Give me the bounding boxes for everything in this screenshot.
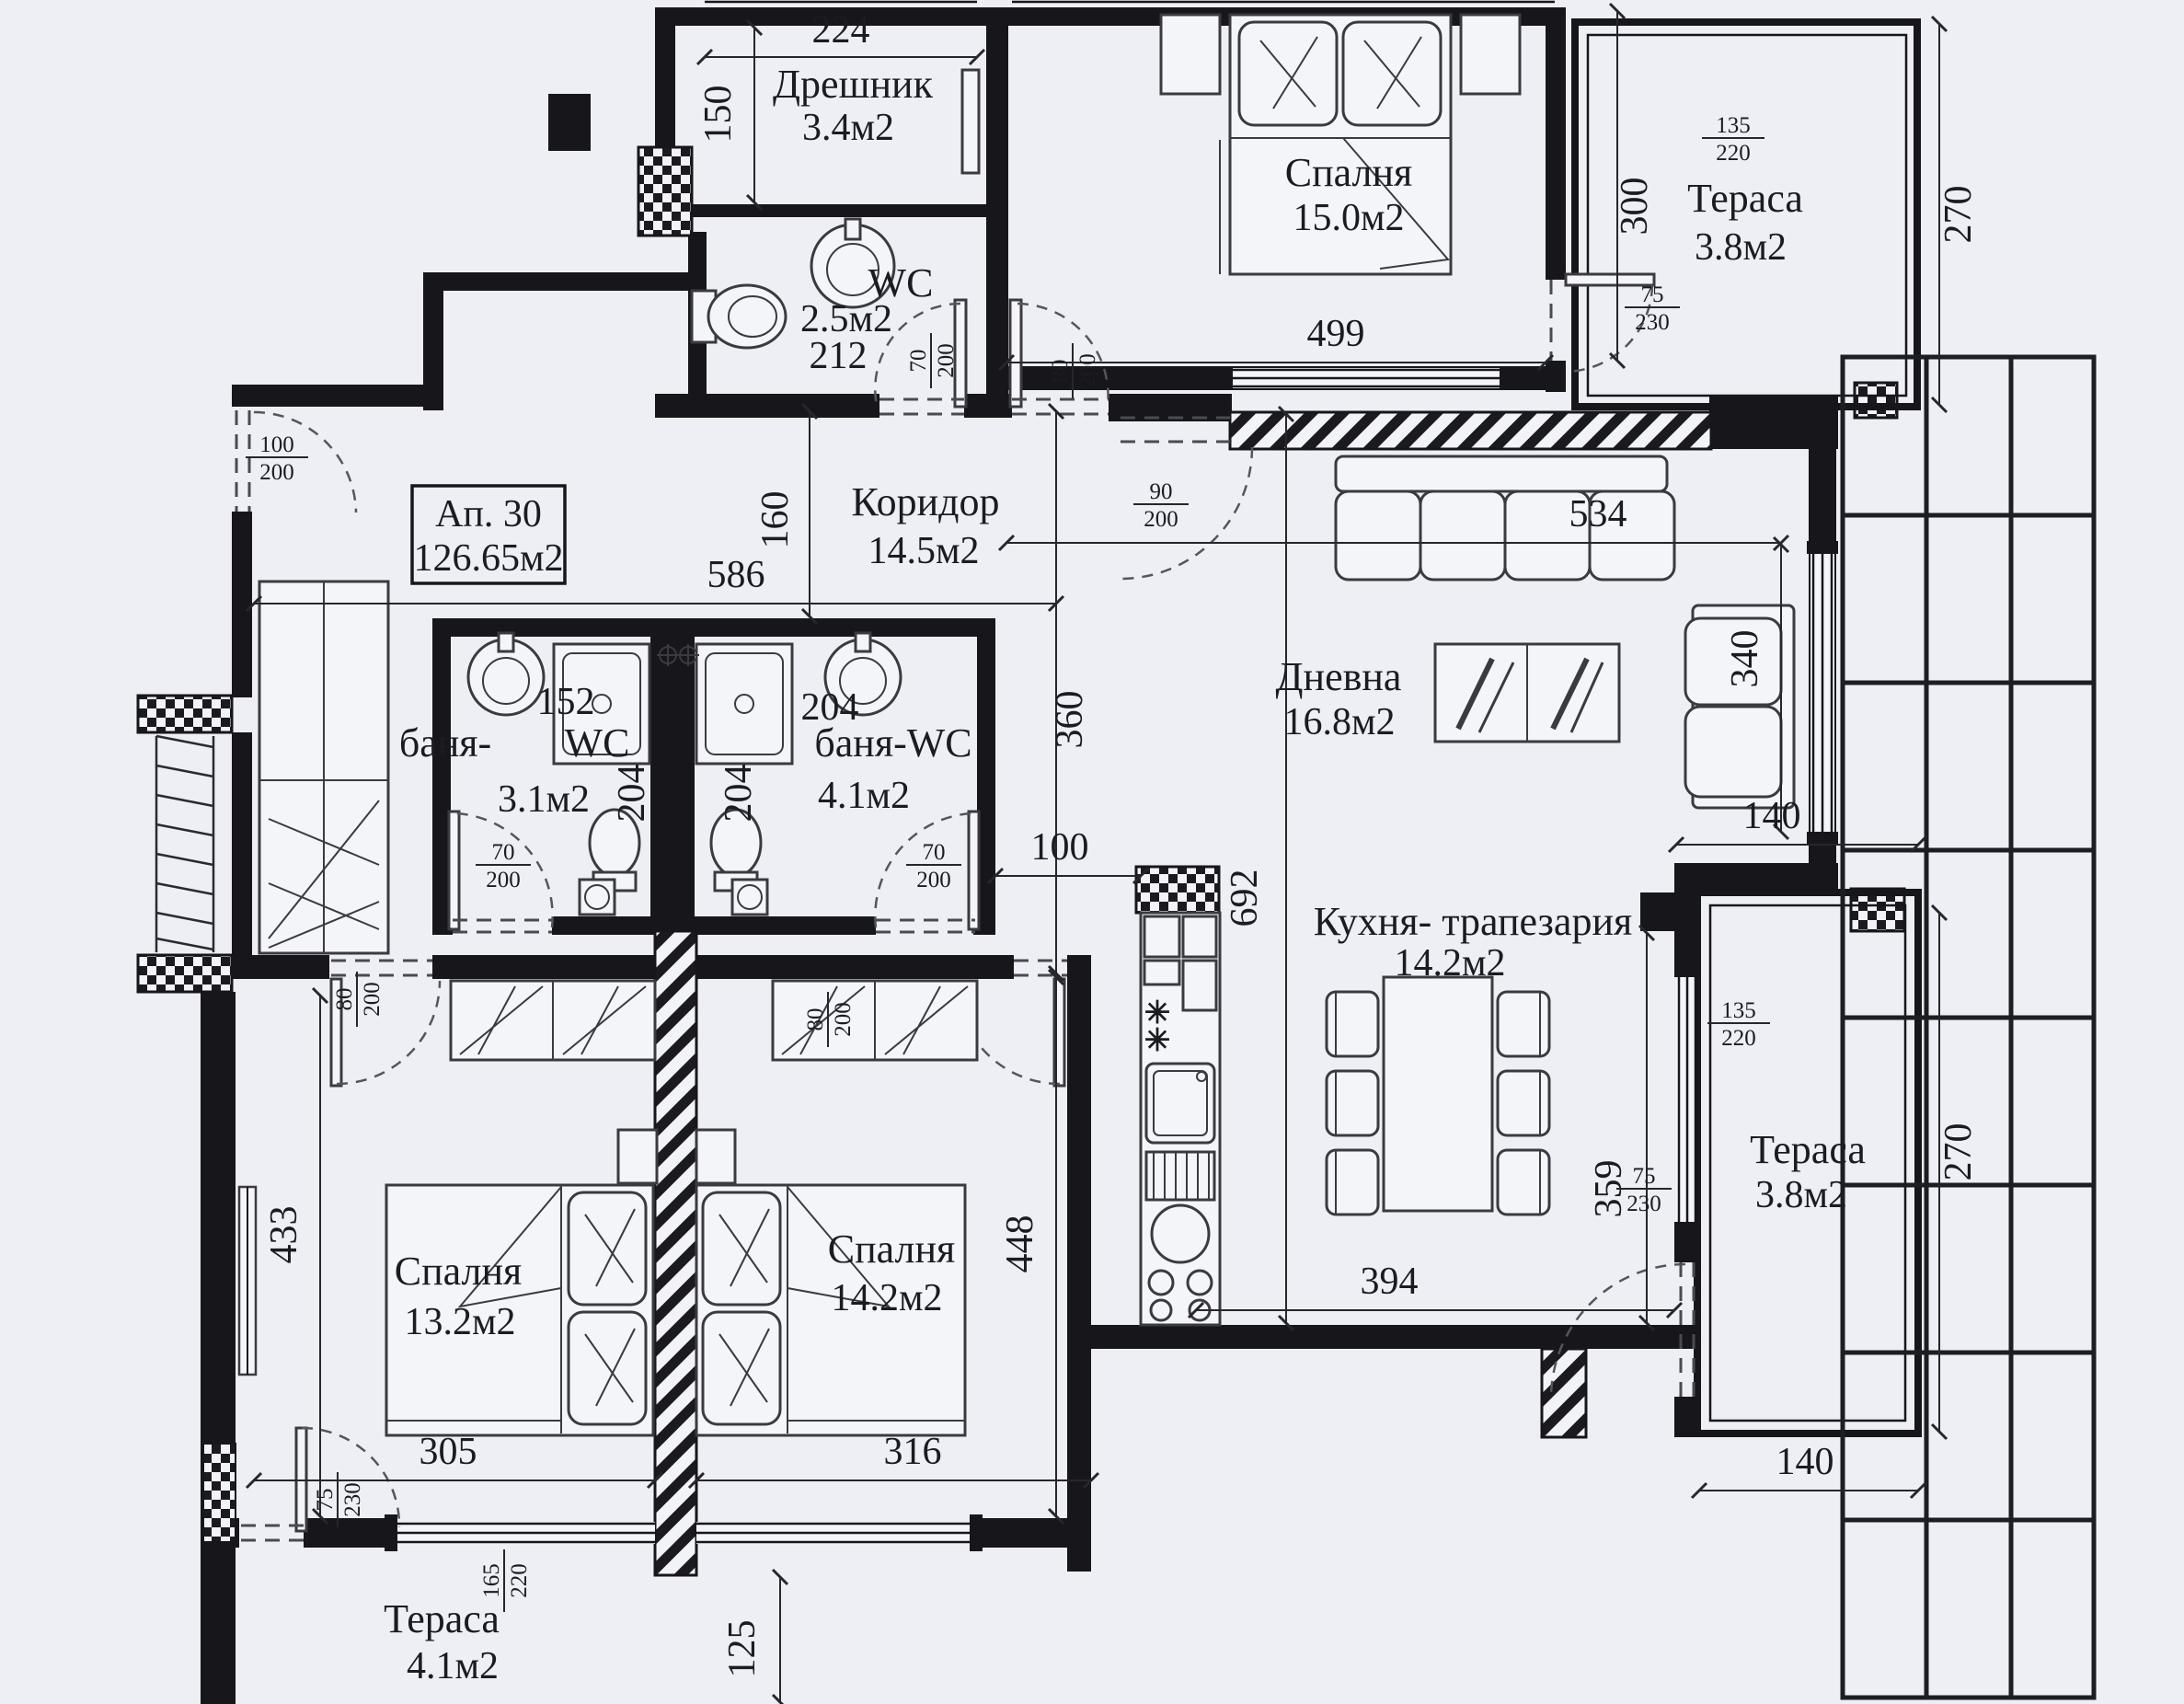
svg-text:75: 75	[1633, 1164, 1656, 1189]
dim-living-w: 534	[1569, 493, 1627, 535]
dim-bath-left-a: 152	[537, 681, 595, 723]
label-bath-left-b: WC	[565, 720, 630, 766]
svg-text:200: 200	[916, 868, 951, 892]
tag-bath-left-door: 70200	[476, 840, 531, 892]
dim-terrace-top-h: 270	[1937, 186, 1980, 244]
svg-text:220: 220	[1721, 1026, 1756, 1051]
label-kitchen-area: 14.2м2	[1394, 942, 1505, 984]
dim-corridor-w: 586	[707, 554, 765, 596]
wc-toilet	[692, 285, 786, 348]
tag-bath-right-door: 70200	[906, 840, 961, 892]
label-terrace-bottom: Тераса	[384, 1596, 500, 1641]
svg-text:220: 220	[1716, 141, 1751, 166]
dim-terrace-right-h: 270	[1937, 1123, 1980, 1181]
svg-text:200: 200	[486, 868, 521, 892]
window-bedroom-mid-bottom	[696, 1522, 970, 1544]
svg-text:70: 70	[923, 840, 946, 865]
chair	[1498, 1071, 1549, 1135]
dim-hall-w: 100	[1031, 826, 1089, 869]
svg-text:230: 230	[1635, 310, 1670, 335]
hob-mark: ✳	[1144, 1024, 1171, 1058]
tag-terrace-top-door: 75230	[1625, 282, 1680, 335]
label-kitchen: Кухня- трапезария	[1314, 899, 1633, 944]
dim-bedroom-top-w: 499	[1307, 313, 1365, 355]
bath-right-toilet	[711, 810, 767, 915]
kitchen-counter	[1141, 913, 1220, 1325]
label-living-area: 16.8м2	[1283, 701, 1395, 743]
wardrobe-left	[451, 981, 655, 1060]
label-terrace-bottom-area: 4.1м2	[407, 1645, 499, 1687]
bath-left-toilet	[580, 810, 639, 915]
label-wc-width: 212	[810, 335, 868, 377]
label-corridor: Коридор	[851, 479, 999, 524]
svg-text:200: 200	[360, 982, 385, 1017]
facade-grid	[1843, 357, 2094, 1698]
dim-bedroom-mid-w: 316	[884, 1431, 942, 1473]
svg-text:100: 100	[259, 432, 294, 457]
svg-text:200: 200	[831, 1002, 856, 1037]
coffee-table	[1435, 644, 1619, 742]
window-kitchen-right	[1676, 977, 1696, 1222]
window-bedroom-top	[1233, 368, 1500, 388]
window-living-right	[1807, 541, 1838, 845]
chair	[1327, 992, 1378, 1056]
dim-kitchen-w: 394	[1361, 1261, 1419, 1303]
dim-terrace-bottom-h: 125	[721, 1620, 764, 1678]
dim-bath-right-a: 204	[718, 765, 760, 823]
dining-table	[1327, 977, 1549, 1215]
chair	[1327, 1071, 1378, 1135]
chair	[1498, 1150, 1549, 1215]
svg-text:80: 80	[803, 1008, 828, 1031]
dim-corridor-h: 160	[754, 491, 797, 549]
tag-living-door: 90200	[1133, 479, 1189, 532]
svg-text:70: 70	[492, 840, 515, 865]
tag-entry-door: 100200	[246, 432, 308, 485]
floor-plan-drawing: 224 150 499 300 270 586 160 360 100 534 …	[0, 0, 2184, 1704]
label-bath-left-area: 3.1м2	[498, 778, 590, 821]
shaft-hatch	[156, 736, 213, 952]
dim-bath-left-b: 204	[611, 765, 653, 823]
label-terrace-right-area: 3.8м2	[1755, 1174, 1847, 1216]
dim-terrace-right-top: 140	[1743, 795, 1801, 837]
label-bedroom-left: Спалня	[395, 1249, 523, 1294]
svg-text:165: 165	[479, 1563, 504, 1598]
label-terrace-top-area: 3.8м2	[1695, 226, 1787, 269]
apartment-number: Ап. 30	[435, 493, 542, 535]
label-corridor-area: 14.5м2	[868, 530, 979, 572]
svg-text:75: 75	[1641, 282, 1664, 307]
svg-text:230: 230	[1627, 1192, 1661, 1216]
chair	[1327, 1150, 1378, 1215]
corridor-closet	[259, 581, 388, 953]
label-closet-area: 3.4м2	[802, 107, 894, 149]
dim-living-window: 340	[1724, 630, 1766, 688]
svg-text:200: 200	[934, 343, 959, 378]
svg-text:70: 70	[906, 350, 931, 373]
svg-text:90: 90	[1150, 479, 1173, 504]
dim-hall-h: 360	[1049, 691, 1091, 749]
closet-rod	[962, 70, 979, 173]
dim-terrace-right-bottom: 140	[1776, 1441, 1834, 1483]
dim-bedroom-left-h: 433	[263, 1206, 305, 1264]
svg-text:80: 80	[332, 988, 357, 1011]
svg-text:75: 75	[313, 1489, 338, 1512]
svg-text:135: 135	[1716, 113, 1751, 138]
bedroom-left-door	[331, 961, 440, 1086]
svg-text:80: 80	[1048, 360, 1073, 383]
window-bedroom-left-bottom	[397, 1522, 655, 1544]
label-bath-right-area: 4.1м2	[818, 775, 910, 817]
label-bedroom-left-area: 13.2м2	[404, 1301, 515, 1343]
label-bath-right: баня-WC	[814, 720, 971, 766]
tag-window-right-terrace: 135220	[1707, 998, 1770, 1051]
tag-window-top-terrace: 135220	[1702, 113, 1764, 166]
tag-wc-door: 70200	[906, 333, 959, 388]
bath-right-shower	[696, 644, 792, 764]
label-terrace-top: Тераса	[1687, 176, 1803, 221]
apartment-area: 126.65м2	[413, 537, 563, 580]
label-closet: Дрешник	[773, 62, 934, 107]
svg-text:200: 200	[1075, 353, 1100, 388]
floor-plan: 224 150 499 300 270 586 160 360 100 534 …	[0, 0, 2184, 1704]
entry-door	[236, 410, 356, 512]
label-bath-left-a: баня-	[399, 720, 491, 766]
dim-bedroom-mid-h: 448	[999, 1215, 1041, 1273]
window-bedroom-left-side	[239, 1187, 256, 1375]
label-bedroom-mid-area: 14.2м2	[831, 1277, 942, 1319]
svg-text:200: 200	[259, 460, 294, 485]
label-terrace-right: Тераса	[1750, 1127, 1866, 1172]
dim-closet-w: 224	[812, 9, 870, 52]
bath-left-sink	[468, 633, 544, 715]
dim-bedroom-top-h: 300	[1614, 178, 1656, 236]
label-living: Дневна	[1276, 654, 1402, 699]
label-bedroom-top: Спалня	[1285, 150, 1413, 195]
label-bedroom-top-area: 15.0м2	[1293, 197, 1404, 239]
apartment-title: Ап. 30 126.65м2	[412, 486, 565, 583]
dim-kitchen-col-h: 692	[1224, 869, 1266, 927]
svg-text:230: 230	[340, 1482, 365, 1517]
dim-bedroom-left-w: 305	[420, 1431, 477, 1473]
svg-text:220: 220	[507, 1563, 532, 1598]
svg-text:135: 135	[1721, 998, 1756, 1023]
chair	[1498, 992, 1549, 1056]
svg-text:200: 200	[1144, 507, 1178, 532]
label-bedroom-mid: Спалня	[828, 1226, 956, 1272]
dim-closet-h: 150	[697, 86, 740, 144]
